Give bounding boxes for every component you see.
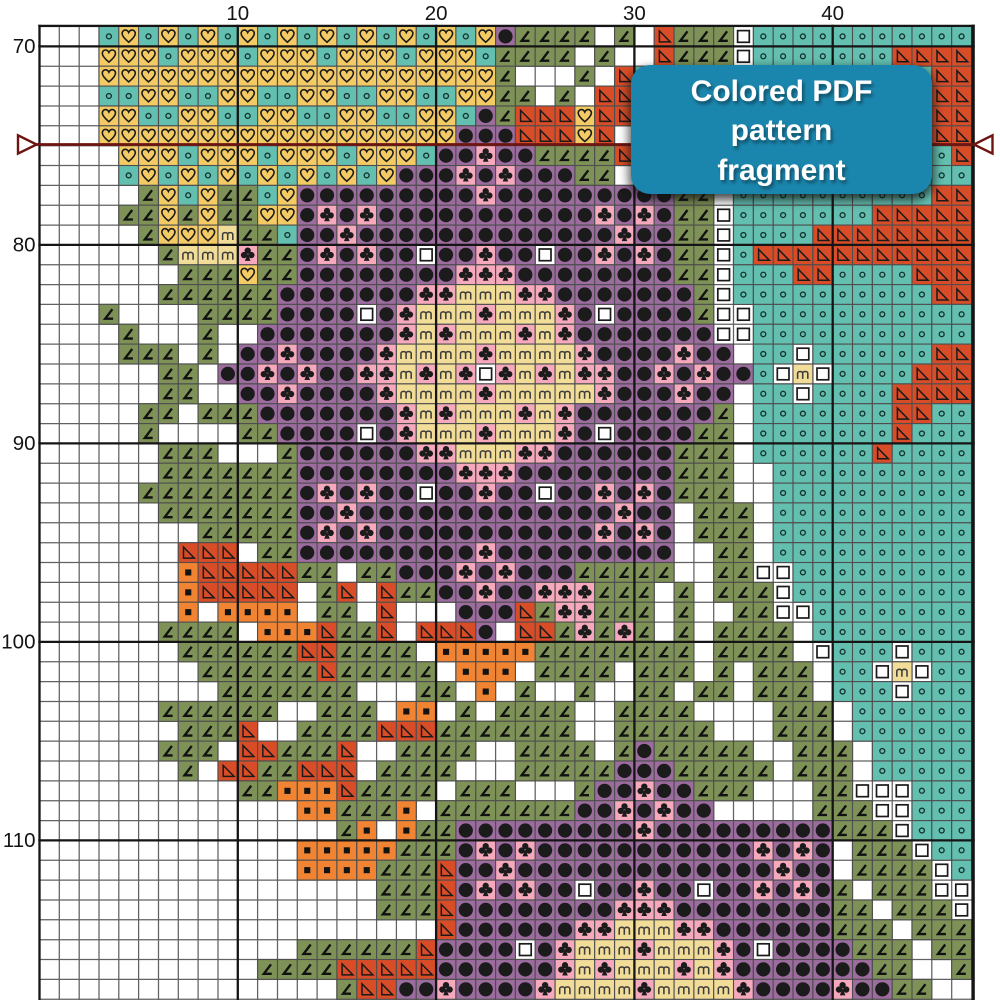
svg-text:30: 30: [623, 2, 646, 25]
svg-text:110: 110: [3, 829, 36, 852]
svg-text:90: 90: [13, 432, 36, 455]
svg-text:100: 100: [1, 631, 35, 654]
svg-text:20: 20: [425, 2, 448, 25]
svg-text:70: 70: [13, 35, 36, 58]
svg-text:10: 10: [226, 2, 249, 25]
svg-text:80: 80: [13, 234, 36, 257]
svg-text:40: 40: [821, 2, 844, 25]
